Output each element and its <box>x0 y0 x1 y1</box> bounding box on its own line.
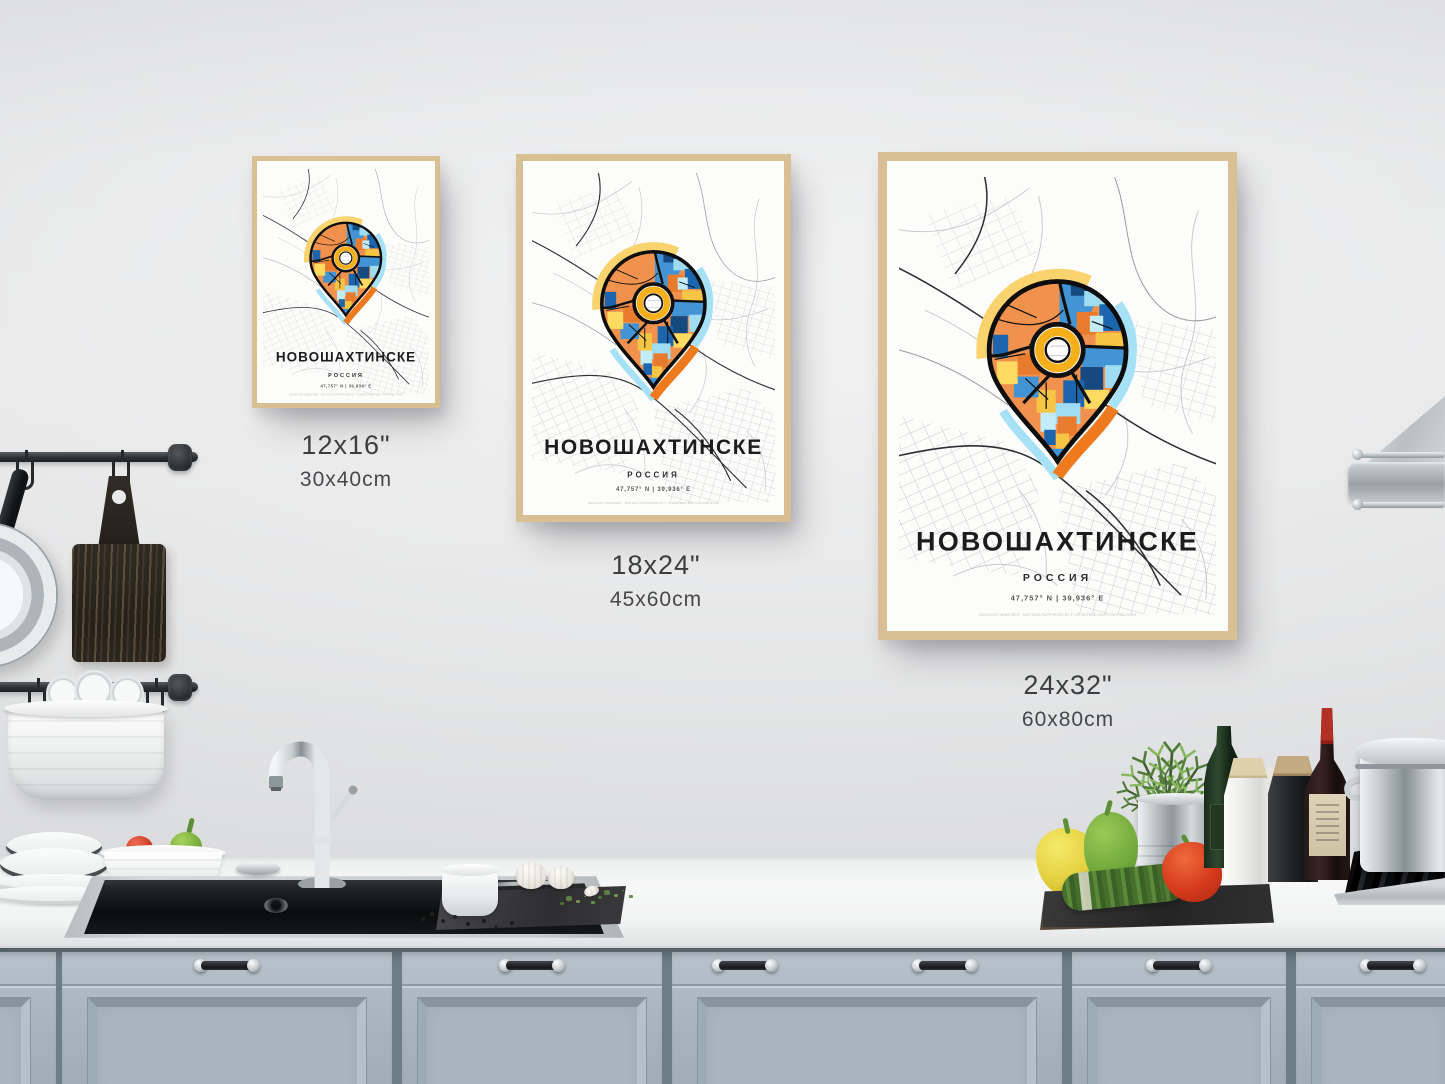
poster-small: НОВОШАХТИНСКЕ РОССИЯ 47,757° N | 39,936°… <box>252 156 440 408</box>
garlic-bulb <box>516 862 546 889</box>
drawer-handle <box>712 958 778 973</box>
utensil-bucket-rim <box>4 700 168 717</box>
poster-title: НОВОШАХТИНСКЕ <box>257 350 435 365</box>
cabinet-door <box>62 952 392 1084</box>
stock-pot <box>1360 748 1445 872</box>
sink-drain <box>264 898 288 913</box>
range-hood-rail <box>1358 452 1445 458</box>
drawer-handle <box>499 958 565 973</box>
poster-subtitle: РОССИЯ <box>523 471 784 480</box>
herb-sprigs <box>604 890 610 895</box>
kitchen-scene: НОВОШАХТИНСКЕ РОССИЯ 47,757° N | 39,936°… <box>0 0 1445 1084</box>
poster-title: НОВОШАХТИНСКЕ <box>523 436 784 460</box>
rail-mount <box>168 674 192 701</box>
drawer-handle <box>1146 958 1212 973</box>
utensil-bucket <box>8 706 164 800</box>
cabinet-door <box>672 952 1062 1084</box>
faucet <box>250 688 370 888</box>
poster-coordinates: 47,757° N | 39,936° E <box>523 487 784 493</box>
peppercorns <box>430 912 434 916</box>
cabinet-door <box>1296 952 1445 1084</box>
rail-finial <box>1352 499 1363 510</box>
rail-finial <box>1352 449 1363 460</box>
poster-credit: DESIGN BY HEBSTREIT · MAP DATA SUPPORTED… <box>257 394 435 397</box>
herb-sprigs <box>566 896 572 901</box>
size-label-medium: 18x24" 45x60cm <box>556 550 756 612</box>
cutting-board-hole <box>112 490 126 504</box>
wine-label <box>1309 794 1346 856</box>
poster-subtitle: РОССИЯ <box>887 572 1228 584</box>
poster-coordinates: 47,757° N | 39,936° E <box>887 593 1228 602</box>
cabinet-run <box>0 948 1445 1084</box>
poster-title: НОВОШАХТИНСКЕ <box>887 526 1228 557</box>
garlic-bulb <box>548 866 574 889</box>
salt-grinder <box>1224 758 1272 884</box>
drawer-handle <box>194 958 260 973</box>
cabinet-door <box>402 952 662 1084</box>
poster-coordinates: 47,757° N | 39,936° E <box>257 383 435 388</box>
drawer-handle <box>912 958 978 973</box>
rail-mount <box>168 444 192 471</box>
range-hood-band <box>1348 462 1445 502</box>
small-white-bowl <box>442 868 498 916</box>
poster-credit: DESIGN BY HEBSTREIT · MAP DATA SUPPORTED… <box>887 613 1228 617</box>
poster-medium: НОВОШАХТИНСКЕ РОССИЯ 47,757° N | 39,936°… <box>516 154 791 522</box>
cabinet-door <box>1072 952 1286 1084</box>
size-label-small: 12x16" 30x40cm <box>256 430 436 492</box>
poster-subtitle: РОССИЯ <box>257 373 435 379</box>
hanging-cutting-board <box>72 544 166 662</box>
cabinet-door <box>0 952 56 1084</box>
range-hood-rail <box>1358 502 1445 508</box>
poster-credit: DESIGN BY HEBSTREIT · MAP DATA SUPPORTED… <box>523 501 784 505</box>
drawer-handle <box>1360 958 1426 973</box>
poster-large: НОВОШАХТИНСКЕ РОССИЯ 47,757° N | 39,936°… <box>878 152 1237 640</box>
